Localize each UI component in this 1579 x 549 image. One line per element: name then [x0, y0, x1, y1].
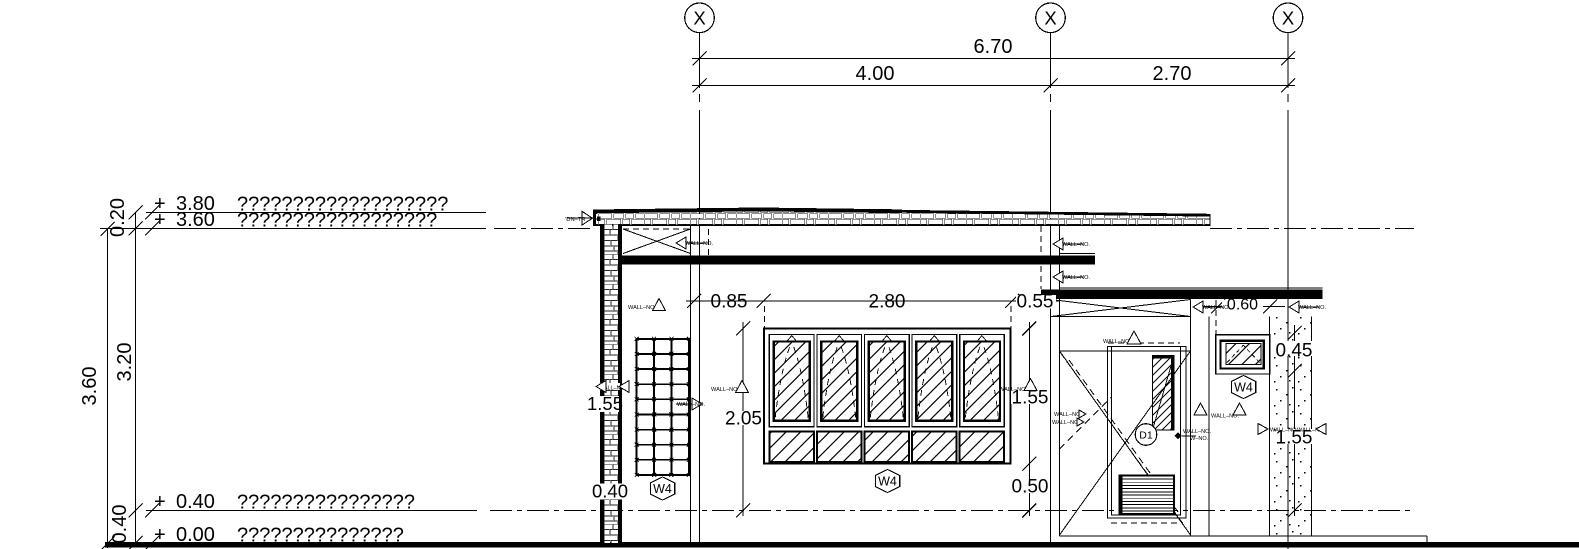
- svg-text:??????????????????: ??????????????????: [237, 210, 437, 232]
- svg-text:WALL–NO.: WALL–NO.: [1062, 242, 1091, 248]
- svg-text:0.50: 0.50: [1012, 477, 1049, 498]
- svg-text:0.60: 0.60: [1227, 297, 1258, 314]
- svg-text:WALL–NO.: WALL–NO.: [1062, 275, 1091, 281]
- svg-text:6.70: 6.70: [974, 36, 1013, 58]
- svg-text:WALL–NO: WALL–NO: [999, 387, 1026, 393]
- svg-text:0.55: 0.55: [1017, 292, 1054, 313]
- svg-text:W4: W4: [653, 482, 672, 496]
- svg-text:WALL–NO.: WALL–NO.: [1052, 420, 1081, 426]
- svg-text:3.60: 3.60: [79, 367, 101, 406]
- svg-text:0.40: 0.40: [176, 491, 215, 513]
- svg-text:WALL–NO.: WALL–NO.: [1054, 412, 1083, 418]
- svg-text:2.70: 2.70: [1153, 63, 1192, 85]
- svg-text:3.60: 3.60: [176, 209, 215, 231]
- svg-text:WALL–NO: WALL–NO: [1270, 428, 1297, 434]
- svg-text:0.45: 0.45: [1276, 341, 1313, 362]
- svg-text:WALL–NO.: WALL–NO.: [685, 241, 714, 247]
- svg-text:X: X: [1044, 7, 1056, 28]
- svg-text:WALL–NO.: WALL–NO.: [677, 402, 706, 408]
- svg-text:W4: W4: [878, 475, 897, 489]
- svg-text:????????????????: ????????????????: [237, 492, 415, 514]
- svg-text:WALL–NO.: WALL–NO.: [1298, 305, 1327, 311]
- svg-text:4.00: 4.00: [856, 63, 895, 85]
- svg-text:+: +: [154, 209, 166, 231]
- svg-text:W4: W4: [1234, 381, 1253, 395]
- svg-text:0.40: 0.40: [592, 481, 628, 502]
- svg-text:2.05: 2.05: [725, 409, 762, 430]
- svg-text:3.20: 3.20: [114, 343, 136, 382]
- svg-text:0.20: 0.20: [107, 198, 129, 237]
- svg-text:WALL–NO.: WALL–NO.: [1202, 305, 1231, 311]
- svg-text:1.55: 1.55: [587, 393, 623, 414]
- svg-text:X: X: [1282, 7, 1294, 28]
- svg-text:0.40: 0.40: [109, 505, 131, 544]
- svg-text:2.80: 2.80: [869, 292, 906, 313]
- svg-text:0.85: 0.85: [711, 292, 748, 313]
- svg-text:X: X: [693, 7, 705, 28]
- svg-text:WALL–NO.: WALL–NO.: [1183, 429, 1212, 435]
- svg-text:+: +: [154, 491, 166, 513]
- svg-text:‘DN–TR: ‘DN–TR: [565, 217, 586, 223]
- svg-text:D1: D1: [1139, 430, 1153, 442]
- svg-text:W–NO.: W–NO.: [1190, 436, 1209, 442]
